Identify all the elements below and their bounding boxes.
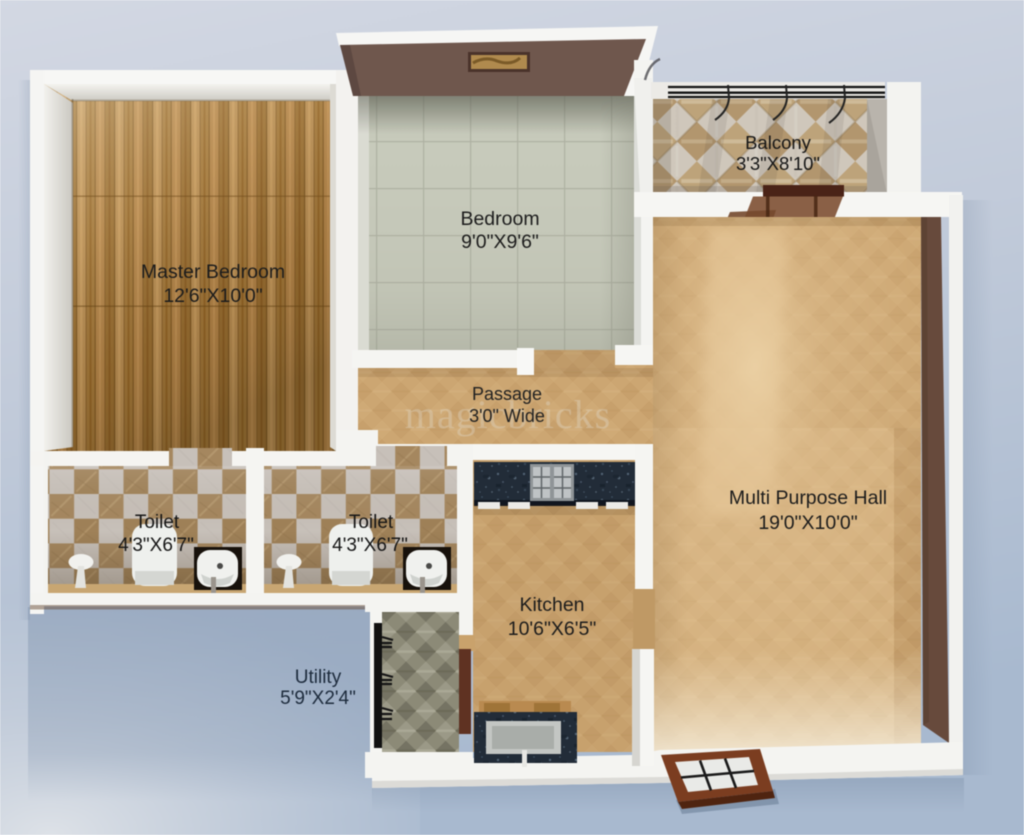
svg-text:Passage: Passage (472, 384, 542, 404)
svg-text:Kitchen: Kitchen (519, 594, 584, 616)
svg-text:Multi Purpose Hall: Multi Purpose Hall (729, 487, 887, 509)
svg-text:10'6"X6'5": 10'6"X6'5" (508, 618, 597, 640)
svg-text:19'0"X10'0": 19'0"X10'0" (758, 512, 857, 534)
svg-text:Balcony: Balcony (745, 132, 812, 153)
svg-text:Toilet: Toilet (135, 512, 180, 533)
svg-text:4'3"X6'7": 4'3"X6'7" (332, 535, 408, 556)
svg-text:4'3"X6'7": 4'3"X6'7" (118, 535, 194, 556)
svg-text:Utility: Utility (295, 667, 342, 688)
svg-text:12'6"X10'0": 12'6"X10'0" (163, 285, 262, 307)
svg-text:Master Bedroom: Master Bedroom (141, 261, 285, 283)
svg-text:9'0"X9'6": 9'0"X9'6" (461, 231, 539, 253)
svg-text:Bedroom: Bedroom (460, 208, 539, 230)
svg-text:5'9"X2'4": 5'9"X2'4" (280, 688, 356, 709)
svg-text:Toilet: Toilet (349, 512, 394, 533)
svg-text:3'0" Wide: 3'0" Wide (469, 406, 545, 426)
svg-text:3'3"X8'10": 3'3"X8'10" (736, 153, 820, 174)
